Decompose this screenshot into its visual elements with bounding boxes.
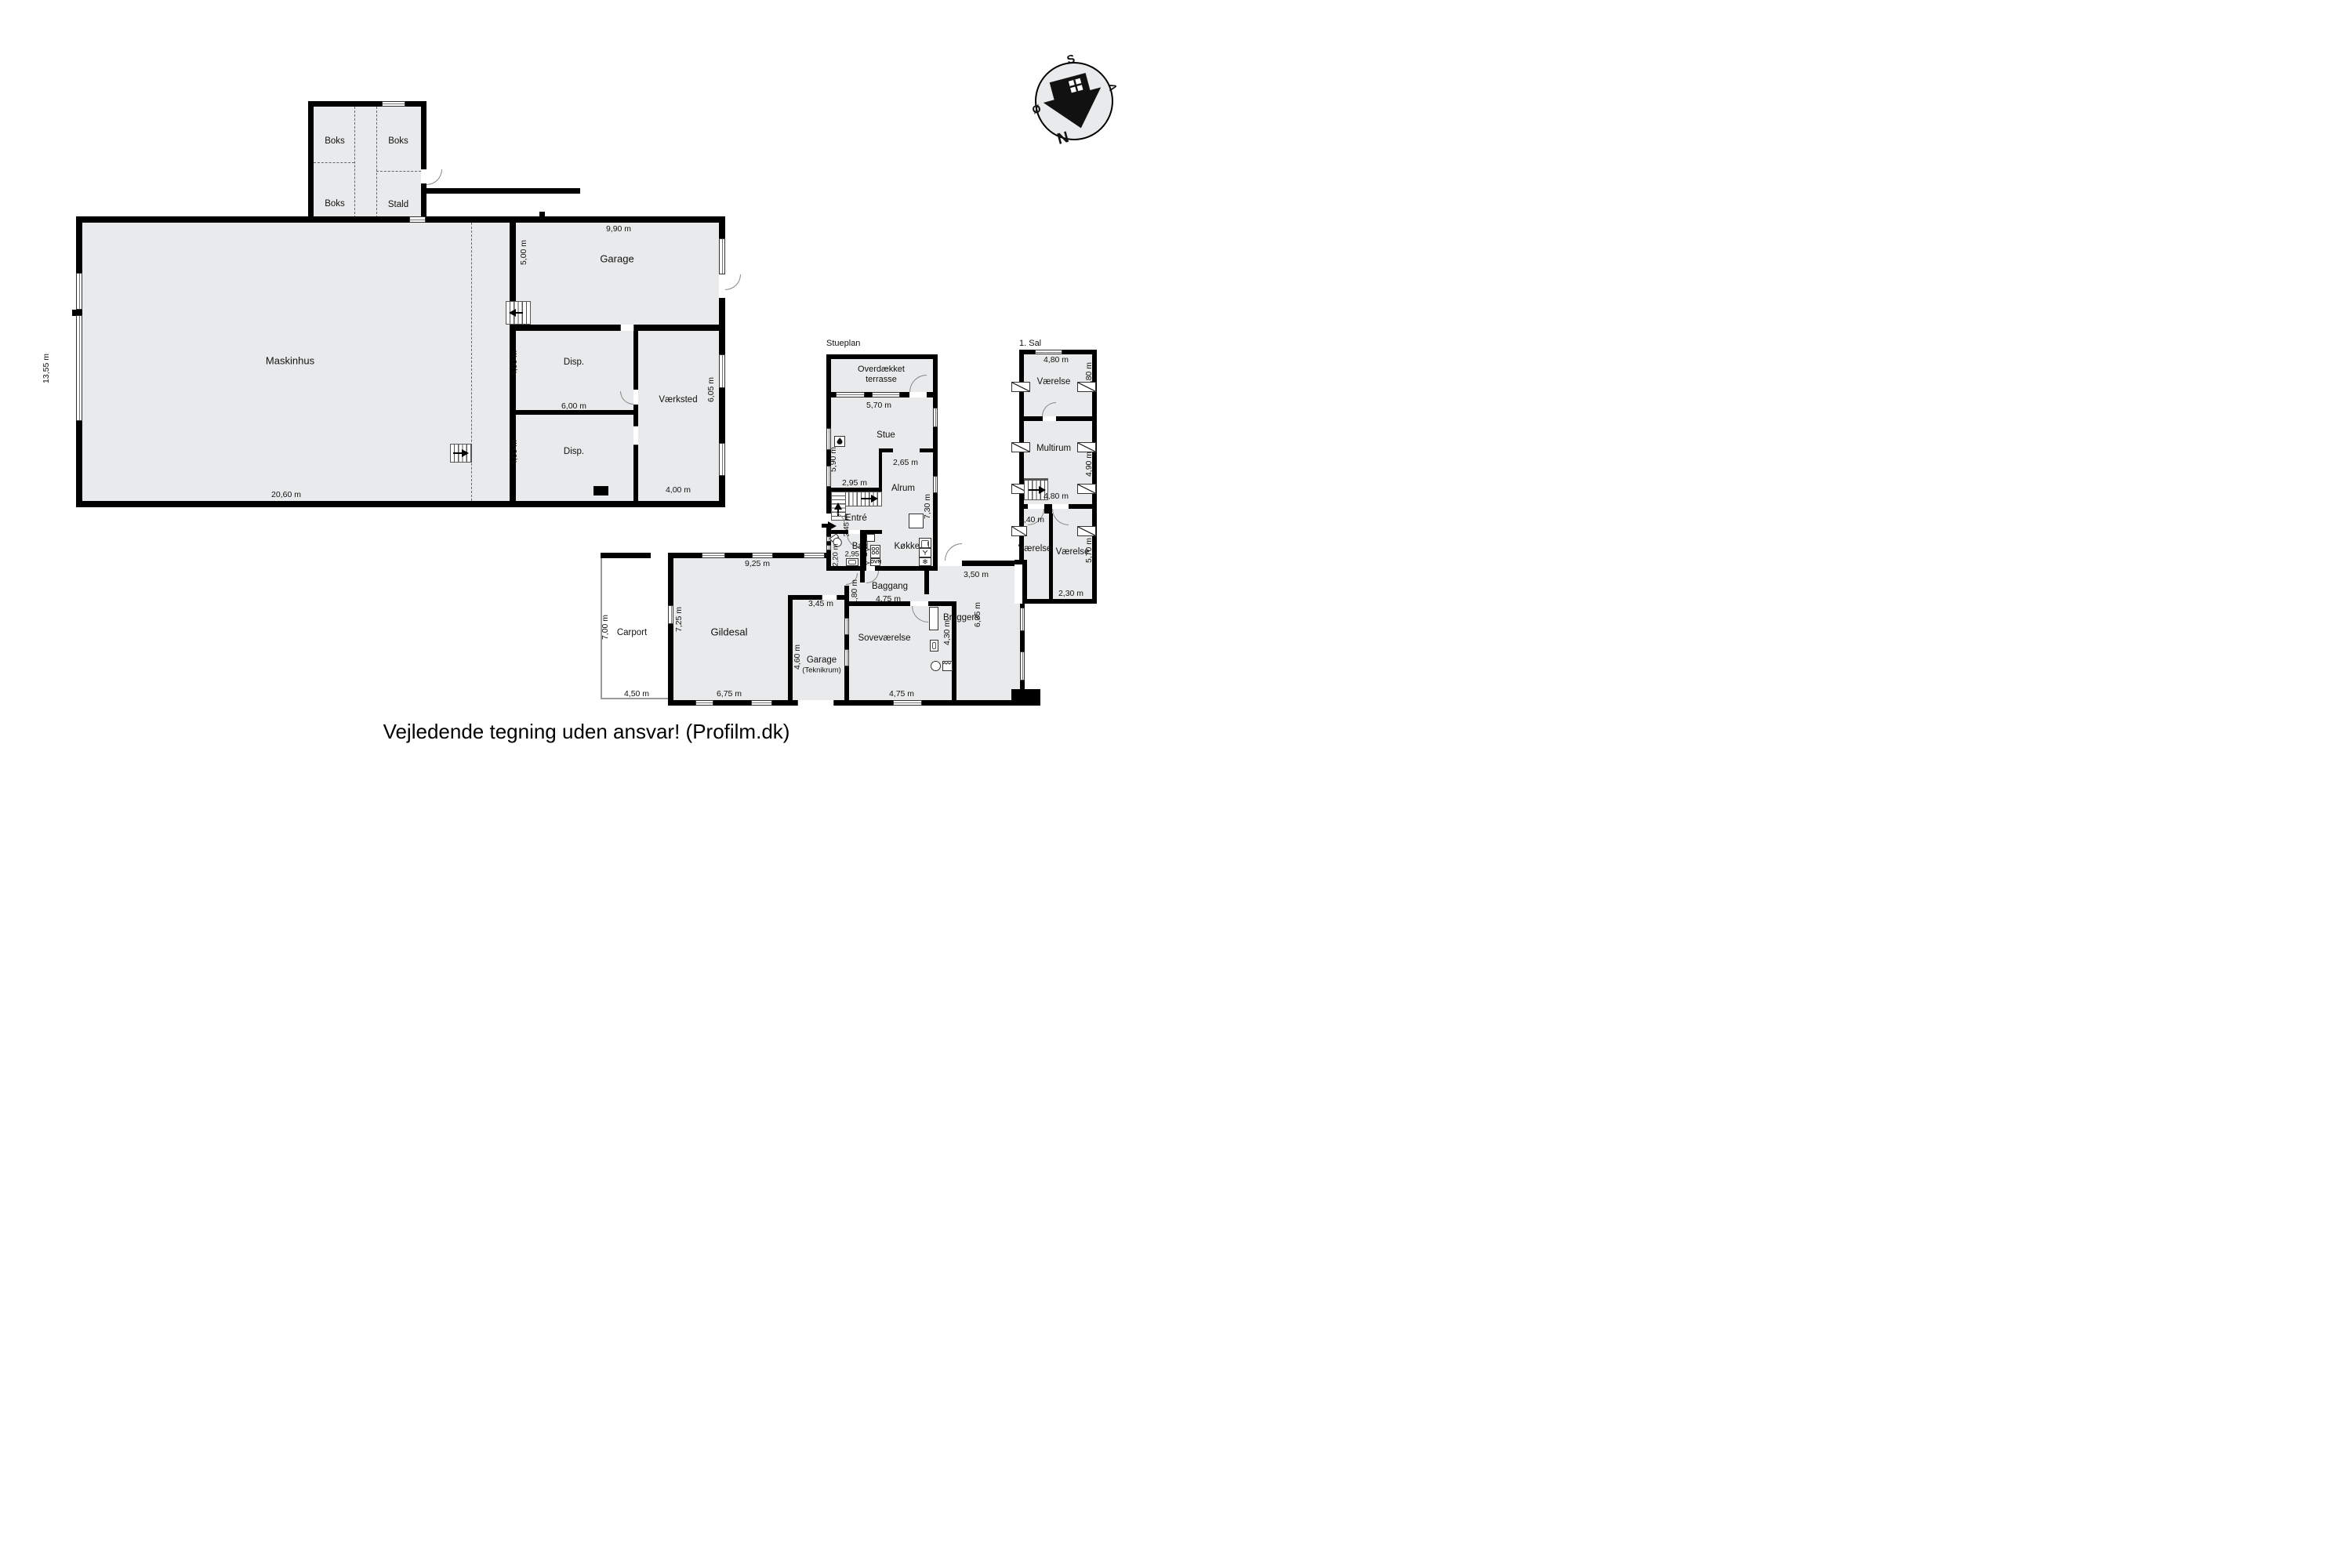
window bbox=[695, 700, 713, 706]
wall bbox=[849, 601, 956, 606]
window bbox=[382, 101, 405, 107]
wall bbox=[1044, 504, 1052, 514]
room-label-stue: Stue bbox=[877, 430, 895, 440]
window bbox=[76, 315, 82, 421]
door-opening bbox=[1043, 416, 1056, 421]
room-label-terrasse: Overdækket terrasse bbox=[851, 365, 912, 385]
stairs-arrow-head bbox=[462, 449, 469, 457]
dim-label: 4,00 m bbox=[510, 440, 519, 465]
window bbox=[844, 618, 849, 635]
notch-outside bbox=[1014, 560, 1022, 604]
room-label-boks: Boks bbox=[325, 199, 345, 209]
dim-label: 4,30 m bbox=[942, 620, 952, 645]
door-opening bbox=[719, 274, 725, 298]
kitchen-sink-icon bbox=[919, 538, 931, 548]
dim-label: 2,40 m bbox=[1019, 515, 1044, 524]
door-opening bbox=[909, 392, 927, 397]
dim-label: 4,00 m bbox=[510, 350, 519, 376]
room-label-multirum: Multirum bbox=[1036, 444, 1071, 453]
stairs-arrow bbox=[1029, 489, 1040, 491]
room-label-sovevaerelse: Soveværelse bbox=[858, 633, 910, 643]
wall bbox=[633, 331, 638, 501]
dim-label: 3,50 m bbox=[964, 570, 989, 579]
dim-label: 3,45 m bbox=[808, 599, 833, 608]
window bbox=[933, 408, 938, 427]
dim-label: 4,00 m bbox=[666, 485, 691, 495]
sink-icon bbox=[930, 640, 938, 652]
dim-label: 9,90 m bbox=[606, 224, 631, 234]
dim-label: 2,20 m bbox=[832, 543, 840, 566]
dim-label: 2,95 m bbox=[842, 478, 867, 488]
stairs-arrow-head bbox=[871, 495, 878, 503]
room-label-baggang: Baggang bbox=[872, 582, 908, 591]
door-opening bbox=[620, 325, 634, 331]
room-label-boks: Boks bbox=[325, 136, 345, 146]
window bbox=[719, 238, 725, 274]
skylight-window bbox=[1077, 382, 1096, 392]
gildesal-floor bbox=[673, 558, 847, 700]
dim-label: 4,50 m bbox=[624, 689, 649, 699]
dim-label: 4,60 m bbox=[793, 644, 802, 670]
snowflake-icon: ❄ bbox=[922, 558, 928, 567]
dim-label: 5,70 m bbox=[866, 401, 891, 410]
wall bbox=[426, 188, 580, 194]
door-opening bbox=[421, 169, 426, 183]
room-label-vaerelse: Værelse bbox=[1018, 544, 1052, 554]
window bbox=[804, 553, 825, 558]
skylight-window bbox=[1011, 526, 1027, 536]
room-label-maskinhus: Maskinhus bbox=[266, 355, 314, 367]
room-label-alrum: Alrum bbox=[891, 484, 915, 493]
window bbox=[751, 700, 772, 706]
wall bbox=[668, 558, 673, 706]
oven-label: OVN bbox=[870, 560, 881, 565]
room-label-garage: Garage bbox=[600, 253, 633, 265]
washing-machine-icon bbox=[931, 661, 941, 671]
wall bbox=[516, 325, 719, 331]
wall bbox=[920, 448, 933, 452]
dim-label: 4,75 m bbox=[889, 689, 914, 699]
window bbox=[933, 476, 938, 493]
dim-label: 13,55 m bbox=[42, 354, 51, 383]
window bbox=[826, 466, 831, 487]
disclaimer-text: Vejledende tegning uden ansvar! (Profilm… bbox=[383, 720, 790, 744]
wall bbox=[860, 571, 865, 583]
wall bbox=[668, 553, 826, 558]
fireplace-icon bbox=[834, 436, 845, 447]
window bbox=[872, 392, 900, 397]
wall bbox=[72, 310, 76, 316]
wall bbox=[1024, 416, 1092, 421]
window bbox=[668, 605, 673, 624]
floor-plan-page: Boks Boks Boks Stald Maskinhus 13,55 m 2… bbox=[0, 0, 1176, 784]
dim-label: 7,25 m bbox=[674, 607, 684, 632]
wall bbox=[668, 700, 1025, 706]
compass-rose bbox=[1035, 62, 1113, 140]
room-label-garage-teknikrum: Garage bbox=[807, 655, 837, 665]
window bbox=[893, 700, 922, 706]
wall-corner bbox=[1011, 689, 1040, 706]
dim-label: 6,75 m bbox=[717, 689, 742, 699]
window bbox=[76, 273, 82, 310]
dim-label: 20,60 m bbox=[271, 490, 301, 499]
stairs-arrow bbox=[861, 498, 872, 499]
wall bbox=[924, 571, 929, 594]
counter bbox=[909, 514, 924, 528]
dim-label: 4,80 m bbox=[1044, 355, 1069, 365]
compass-house-arrow-icon bbox=[1036, 64, 1111, 138]
window bbox=[826, 545, 831, 550]
dim-label: 7,00 m bbox=[601, 615, 610, 640]
room-label-boks: Boks bbox=[388, 136, 408, 146]
counter bbox=[929, 607, 938, 630]
dim-label: 6,05 m bbox=[706, 377, 716, 402]
dim-label: 6,35 m bbox=[973, 602, 982, 627]
window bbox=[752, 553, 773, 558]
wall-pillar bbox=[593, 486, 608, 495]
room-label-carport: Carport bbox=[617, 628, 647, 637]
room-label-disp: Disp. bbox=[564, 447, 584, 456]
shelf bbox=[866, 534, 875, 542]
window bbox=[409, 216, 426, 223]
room-label-disp: Disp. bbox=[564, 358, 584, 367]
dim-label: 5,70 m bbox=[1084, 538, 1094, 563]
plan-title-1sal: 1. Sal bbox=[1019, 339, 1041, 348]
wall bbox=[511, 410, 637, 415]
dim-label: 5,00 m bbox=[519, 240, 528, 265]
sink-icon bbox=[846, 558, 858, 566]
garage-door-opening bbox=[797, 700, 834, 706]
stall-partition-dashed bbox=[314, 162, 354, 163]
window bbox=[844, 649, 849, 666]
dim-label: 7,30 m bbox=[923, 494, 932, 519]
wall bbox=[1022, 560, 1027, 604]
dim-label: 9,25 m bbox=[745, 559, 770, 568]
skylight-window bbox=[1011, 442, 1030, 452]
door-opening bbox=[633, 390, 638, 405]
stall-partition-dashed bbox=[376, 107, 377, 218]
wall bbox=[601, 553, 651, 558]
dishwasher-icon bbox=[919, 548, 931, 557]
dim-label: 2,65 m bbox=[893, 458, 918, 467]
skylight-window bbox=[1011, 382, 1030, 392]
stall-partition-dashed bbox=[354, 107, 355, 218]
dim-label: 2,30 m bbox=[1058, 589, 1083, 598]
window bbox=[1020, 652, 1025, 681]
room-label-gildesal: Gildesal bbox=[711, 626, 748, 638]
window bbox=[719, 443, 725, 476]
wall bbox=[1049, 514, 1053, 600]
skylight-window bbox=[1077, 526, 1096, 536]
door-arrow-head bbox=[509, 309, 516, 317]
door-arc bbox=[945, 543, 962, 561]
window bbox=[719, 354, 725, 388]
window bbox=[702, 553, 725, 558]
stove-icon bbox=[870, 545, 880, 558]
vent-icon: ≻ bbox=[866, 546, 871, 554]
laundry-basket-icon bbox=[942, 661, 953, 671]
plan-title-stueplan: Stueplan bbox=[826, 339, 860, 348]
window bbox=[826, 428, 831, 450]
skylight-window bbox=[1077, 484, 1096, 494]
room-label-stald: Stald bbox=[388, 200, 408, 209]
room-label-teknikrum: (Teknikrum) bbox=[802, 666, 841, 675]
window bbox=[836, 392, 865, 397]
room-label-vaerksted: Værksted bbox=[659, 395, 697, 405]
door-arc bbox=[725, 274, 741, 290]
door-opening bbox=[633, 426, 638, 445]
dim-label: 4,90 m bbox=[1084, 452, 1094, 477]
window bbox=[1020, 608, 1025, 631]
door-arc bbox=[426, 169, 442, 185]
window bbox=[1035, 350, 1062, 354]
dim-label: 4,80 m bbox=[1044, 492, 1069, 501]
stall-partition-dashed bbox=[376, 171, 421, 172]
room-label-vaerelse: Værelse bbox=[1037, 377, 1071, 387]
